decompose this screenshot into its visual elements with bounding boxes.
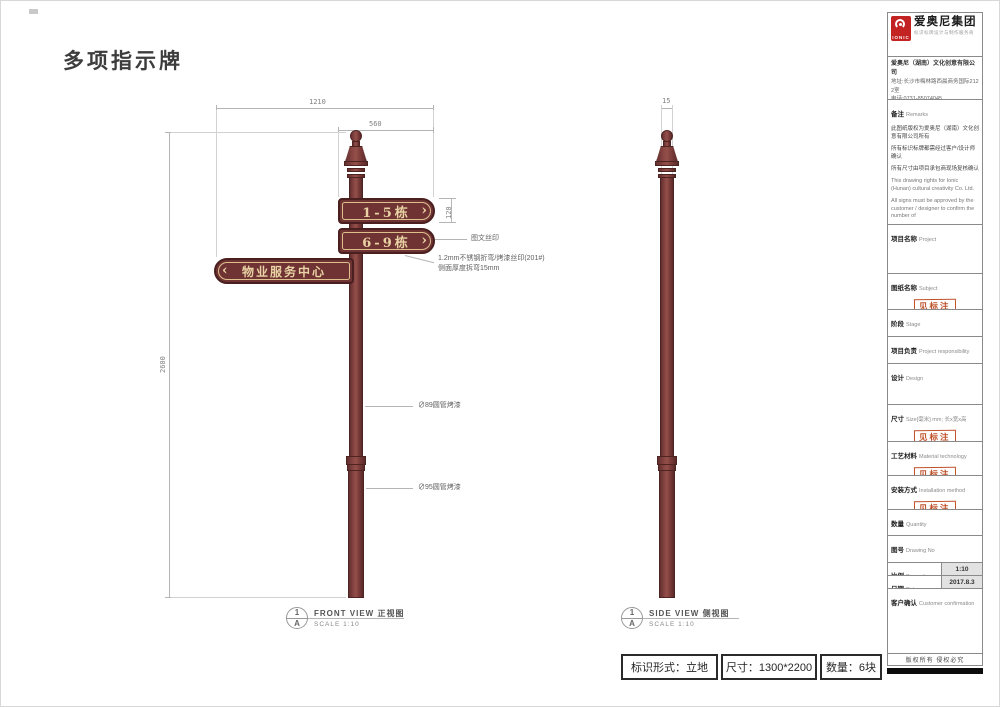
remarks-line: 所有标识标牌都需经过客户/设计师确认: [891, 145, 979, 161]
spec-bar: 标识形式：立地 尺寸：1300*2200 数量：6块: [621, 654, 882, 680]
dim-extension: [171, 597, 346, 598]
field-install: 安装方式Installation method 见标注: [887, 475, 983, 510]
field-design: 设计Design: [887, 363, 983, 405]
company-box: 爱奥尼（湖南）文化创意有限公司 地址:长沙市梅林路西晨商务国际2122室 电话:…: [887, 56, 983, 100]
note-pipe-95: ∅95圆管烤漆: [418, 483, 461, 492]
note-material-2: 侧面厚度拆弯15mm: [438, 264, 499, 273]
logo-ionic-text: IONIC: [891, 35, 911, 40]
company-name: 爱奥尼（湖南）文化创意有限公司: [891, 60, 979, 78]
pole-ring: [347, 168, 365, 172]
note-silkscreen: 图文丝印: [471, 234, 499, 243]
sign-plate-service-center: 物业服务中心 ‹: [214, 258, 354, 284]
pole-finial-cap: [656, 146, 678, 162]
dim-line: [216, 108, 433, 109]
sheet-corner-mark: [29, 9, 38, 14]
remarks-label: 备注: [891, 111, 904, 118]
pole-ring: [658, 168, 676, 172]
arrow-right-icon: ›: [421, 232, 427, 248]
view-title: SIDE VIEW 侧视图: [649, 608, 730, 619]
page-title: 多项指示牌: [63, 45, 183, 75]
field-quantity: 数量Quantity: [887, 509, 983, 536]
field-drawing-no: 图号Drawing No: [887, 535, 983, 563]
view-ref-letter: A: [622, 619, 642, 629]
plate-label: 物业服务中心: [242, 263, 326, 280]
dim-line: [169, 132, 170, 598]
leader-line: [435, 239, 467, 240]
view-ref-bubble: 1 A: [621, 607, 643, 629]
pole-shaft-lower: [659, 470, 675, 598]
field-responsibility: 项目负责Project responsibility: [887, 336, 983, 364]
dim-extension: [171, 132, 346, 133]
spec-sign-type: 标识形式：立地: [621, 654, 718, 680]
proportion-value: 1:10: [941, 563, 982, 575]
date-value: 2017.8.3: [941, 576, 982, 588]
view-ref-bubble: 1 A: [286, 607, 308, 629]
field-material: 工艺材料Material technology 见标注: [887, 441, 983, 476]
dim-plate-height: 120: [445, 206, 453, 219]
pole-shaft-lower: [348, 470, 364, 598]
field-project: 项目名称Project: [887, 224, 983, 274]
dim-extension: [439, 198, 456, 199]
view-ref-number: 1: [287, 608, 307, 619]
company-address: 地址:长沙市梅林路西晨商务国际2122室: [891, 78, 979, 95]
dim-extension: [338, 132, 339, 197]
view-ref-number: 1: [622, 608, 642, 619]
dim-extension: [439, 222, 456, 223]
leader-line: [366, 488, 413, 489]
view-scale: SCALE 1:10: [314, 621, 360, 628]
remarks-line: 所有尺寸由项目承包商现场复核确认: [891, 165, 979, 173]
field-proportion: 比例Proportion 1:10: [887, 562, 983, 576]
remarks-box: 备注Remarks 此图纸版权为爱奥尼（湖南）文化创意有限公司所有 所有标识标牌…: [887, 99, 983, 225]
group-name: 爱奥尼集团: [914, 16, 977, 29]
arrow-left-icon: ‹: [222, 262, 228, 278]
arrow-right-icon: ›: [421, 202, 427, 218]
dim-line: [661, 108, 672, 109]
spec-size: 尺寸：1300*2200: [721, 654, 817, 680]
leader-line: [405, 255, 434, 263]
leader-line: [365, 406, 413, 407]
sign-plate-1-5: 1-5栋 ›: [338, 198, 435, 224]
dim-side-thickness: 15: [662, 97, 670, 105]
field-date: 日期Date 2017.8.3: [887, 575, 983, 589]
view-ref-letter: A: [287, 619, 307, 629]
sign-plate-6-9: 6-9栋 ›: [338, 228, 435, 254]
dim-pole-height: 2600: [159, 356, 167, 373]
drawing-sheet: 多项指示牌 1-5栋 › 6-9栋 › 物业服务中心 ‹: [0, 0, 1000, 707]
ionic-spiral-logo-icon: IONIC: [891, 16, 911, 41]
plate-label: 1-5栋: [362, 202, 411, 221]
remarks-line: 此图纸版权为爱奥尼（湖南）文化创意有限公司所有: [891, 125, 979, 141]
field-stage: 阶段Stage 初期方案确认: [887, 309, 983, 337]
view-title: FRONT VIEW 正视图: [314, 608, 404, 619]
group-tagline: 标识标牌设计与制作服务商: [914, 30, 977, 36]
remarks-line-en: All signs must be approved by the custom…: [891, 198, 979, 221]
dim-extension: [433, 110, 434, 197]
note-pipe-89: ∅89圆管烤漆: [418, 401, 461, 410]
pole-finial-disc: [344, 161, 368, 166]
title-block: IONIC 爱奥尼集团 标识标牌设计与制作服务商 爱奥尼（湖南）文化创意有限公司…: [887, 13, 983, 674]
pole-shaft-upper: [660, 177, 674, 458]
plate-label: 6-9栋: [362, 232, 411, 251]
field-customer-confirm: 客户确认Customer confirmation: [887, 588, 983, 654]
copyright-text: 版权所有 侵权必究: [887, 653, 983, 666]
spec-quantity: 数量：6块: [820, 654, 882, 680]
view-scale: SCALE 1:10: [649, 621, 695, 628]
pole-finial-cap: [345, 146, 367, 162]
field-size: 尺寸Size[毫米] mm; 长x宽x高 见标注: [887, 404, 983, 442]
dim-tick: [433, 127, 434, 133]
logo-box: IONIC 爱奥尼集团 标识标牌设计与制作服务商: [887, 12, 983, 57]
field-subject: 图纸名称Subject 见标注: [887, 273, 983, 310]
dim-total-width: 1210: [309, 98, 326, 106]
dim-plate-length: 560: [369, 120, 382, 128]
pole-finial-disc: [655, 161, 679, 166]
note-material-1: 1.2mm不锈钢折弯/烤漆丝印(201#): [438, 254, 545, 263]
bottom-black-bar: [887, 668, 983, 674]
remarks-line-en: This drawing rights for Ionic (Hunan) cu…: [891, 178, 979, 193]
